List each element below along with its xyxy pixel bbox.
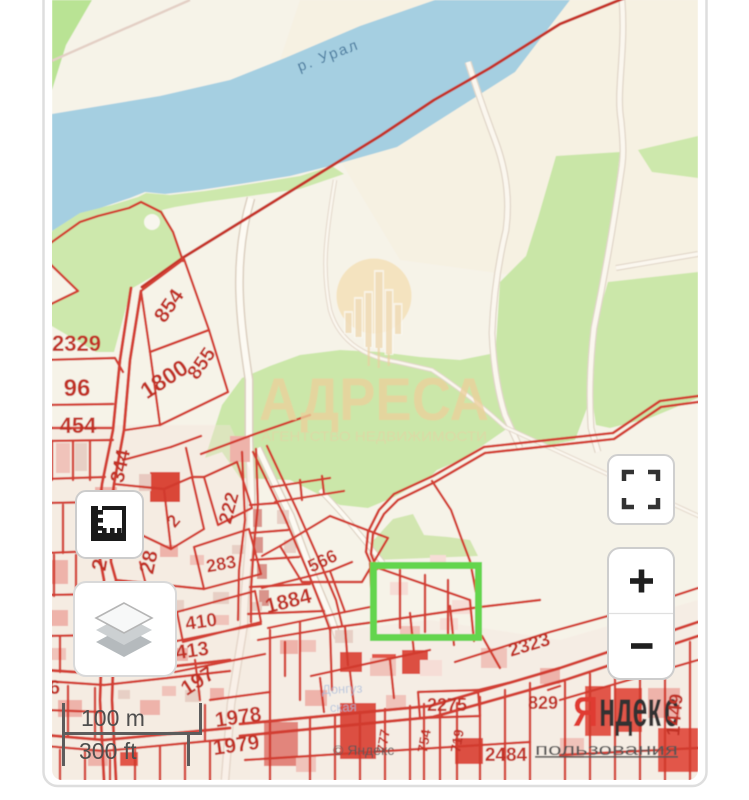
svg-text:1449: 1449 — [663, 693, 688, 737]
svg-text:Я: Я — [573, 688, 598, 735]
svg-text:пользования: пользования — [535, 740, 678, 759]
svg-text:© Яндекс: © Яндекс — [333, 742, 394, 758]
svg-text:2275: 2275 — [427, 695, 467, 715]
svg-text:300 ft: 300 ft — [79, 738, 137, 764]
svg-text:2329: 2329 — [52, 331, 101, 356]
svg-text:454: 454 — [60, 413, 97, 438]
svg-text:ская: ская — [330, 699, 357, 715]
svg-text:АДРЕСА: АДРЕСА — [259, 366, 489, 433]
svg-text:829: 829 — [528, 693, 558, 713]
svg-text:413: 413 — [174, 638, 210, 664]
svg-text:Донгуз: Донгуз — [322, 681, 363, 697]
svg-text:ндек: ндек — [599, 681, 662, 737]
svg-text:АГЕНТСТВО НЕДВИЖИМОСТИ: АГЕНТСТВО НЕДВИЖИМОСТИ — [261, 428, 487, 444]
svg-text:2484: 2484 — [485, 745, 528, 766]
svg-text:410: 410 — [184, 610, 218, 635]
svg-text:100 m: 100 m — [81, 705, 145, 731]
svg-text:96: 96 — [64, 375, 91, 402]
